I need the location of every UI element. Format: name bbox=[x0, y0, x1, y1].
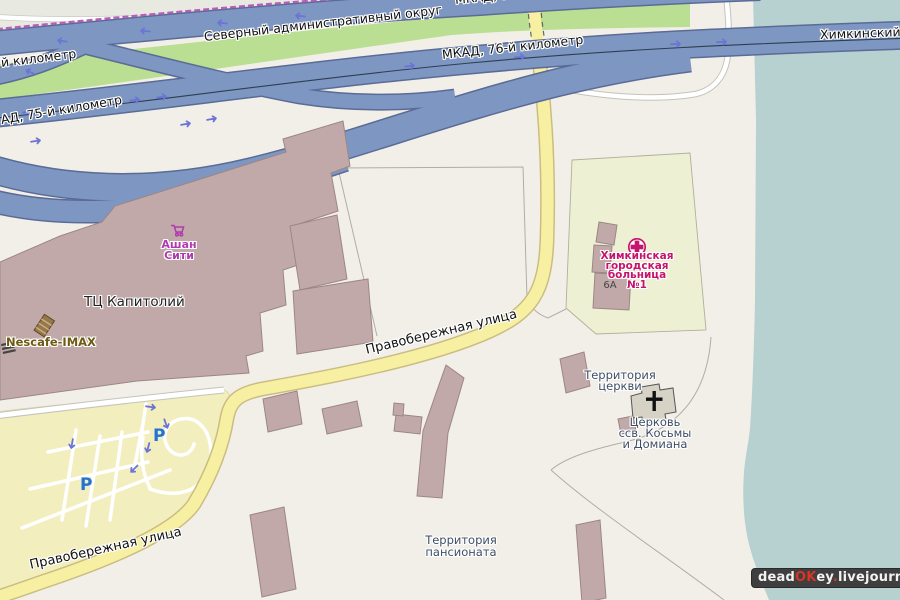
watermark-text: ey bbox=[816, 570, 833, 585]
road-label-bridge: Химкинский bbox=[820, 25, 900, 42]
church-territory-line: церкви bbox=[575, 381, 665, 392]
map-viewport[interactable]: Северный административный округ МКАД, 76… bbox=[0, 0, 900, 600]
ashan-label-line: Сити bbox=[149, 251, 209, 262]
building bbox=[293, 279, 373, 354]
house-number-label: 6А bbox=[600, 280, 620, 291]
building bbox=[393, 403, 404, 416]
parking-icon: P bbox=[153, 427, 165, 446]
pansionat-label-line: пансионата bbox=[411, 547, 511, 559]
building bbox=[394, 414, 422, 434]
church-label-line: и Домиана bbox=[605, 439, 705, 450]
water-body bbox=[743, 0, 900, 600]
building bbox=[290, 215, 347, 290]
watermark-badge: deadOKey.livejournal.com bbox=[752, 569, 900, 587]
mall-label: ТЦ Капитолий bbox=[84, 295, 185, 310]
watermark-text: livejournal bbox=[838, 570, 900, 585]
building bbox=[263, 391, 302, 432]
hospital-building bbox=[596, 222, 617, 245]
parking-icon: P bbox=[80, 476, 92, 495]
ashan-label: Ашан Сити bbox=[149, 240, 209, 261]
church-label: Церковь ссв. Косьмы и Домиана bbox=[605, 417, 705, 450]
church-territory-label: Территория церкви bbox=[575, 370, 665, 392]
watermark-text: dead bbox=[758, 570, 795, 585]
nescafe-imax-label: Nescafe-IMAX bbox=[6, 336, 96, 349]
pansionat-territory-label: Территория пансионата bbox=[411, 535, 511, 558]
watermark-text: OK bbox=[795, 570, 816, 585]
